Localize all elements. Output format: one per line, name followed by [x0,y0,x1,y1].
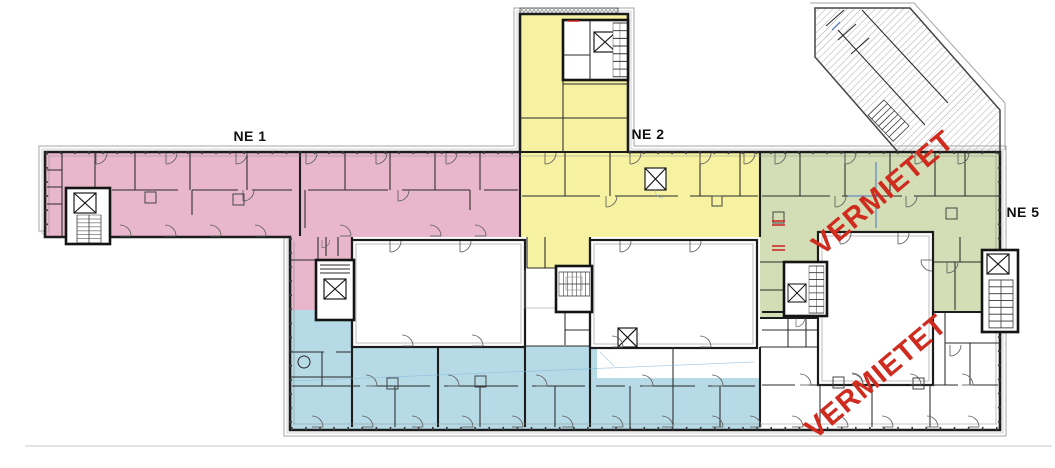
stair-core-middle [556,266,592,312]
floorplan-page: NE 1 NE 2 NE 5 VERMIETET VERMIETET [0,0,1055,468]
stair-core-tower [563,20,628,80]
stair-core-east [982,250,1018,332]
stair-core-connector [316,260,354,320]
courtyard-2 [590,240,757,348]
label-ne2: NE 2 [631,126,664,142]
elevator-shaft-courtyard2 [618,328,637,347]
stair-core-west [66,188,110,244]
floorplan-canvas: NE 1 NE 2 NE 5 VERMIETET VERMIETET [0,0,1055,468]
stair-core-green [784,262,827,316]
wing-north-east [810,3,1005,152]
label-ne1: NE 1 [233,128,266,144]
courtyard-1 [352,240,525,347]
label-ne5: NE 5 [1006,204,1039,220]
